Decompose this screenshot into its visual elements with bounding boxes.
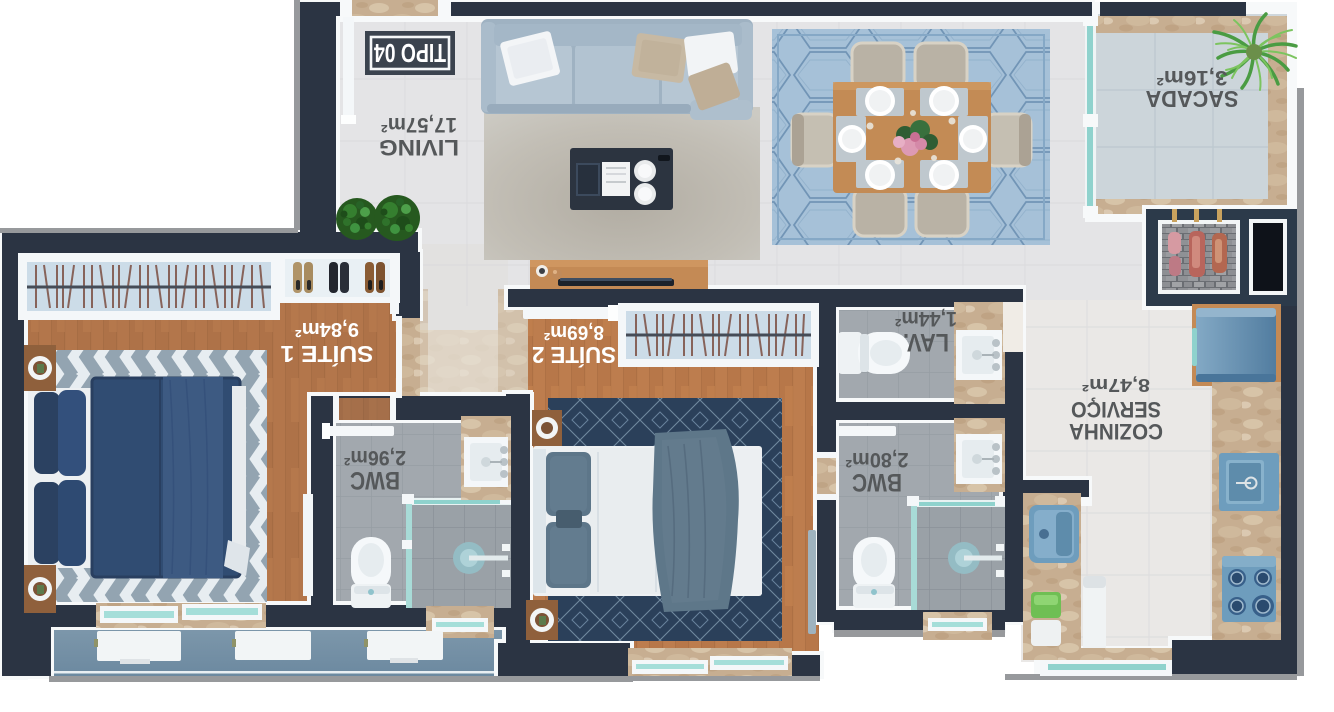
- svg-text:BWC: BWC: [350, 466, 400, 494]
- svg-text:SUÍTE 2: SUÍTE 2: [532, 342, 616, 369]
- svg-text:2,96m²: 2,96m²: [344, 446, 406, 469]
- svg-text:8,47m²: 8,47m²: [1082, 375, 1150, 395]
- svg-text:TIPO 04: TIPO 04: [374, 38, 446, 68]
- svg-text:9,84m²: 9,84m²: [295, 318, 359, 340]
- svg-text:3,16m²: 3,16m²: [1157, 66, 1228, 89]
- svg-text:8,69m²: 8,69m²: [544, 321, 604, 343]
- svg-text:17,57m²: 17,57m²: [381, 113, 457, 136]
- svg-text:LAV.: LAV.: [903, 328, 949, 356]
- svg-text:SUÍTE 1: SUÍTE 1: [280, 341, 373, 368]
- svg-text:SERVIÇO: SERVIÇO: [1071, 397, 1161, 422]
- svg-text:BWC: BWC: [852, 468, 902, 496]
- svg-text:1,44m²: 1,44m²: [895, 307, 957, 330]
- svg-text:2,80m²: 2,80m²: [846, 448, 909, 471]
- svg-text:LIVING: LIVING: [379, 135, 459, 160]
